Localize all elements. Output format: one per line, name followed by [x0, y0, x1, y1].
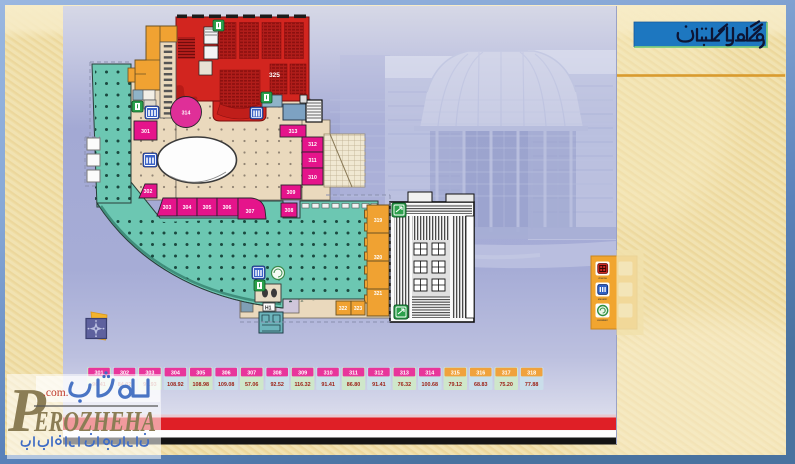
svg-text:310: 310 [308, 175, 317, 181]
svg-text:77.88: 77.88 [525, 382, 539, 388]
svg-text:92.52: 92.52 [270, 382, 284, 388]
svg-text:EROZHEHA: EROZHEHA [33, 406, 156, 438]
svg-text:305: 305 [196, 371, 205, 377]
svg-text:57.06: 57.06 [245, 382, 259, 388]
svg-text:305: 305 [203, 205, 212, 211]
svg-text:313: 313 [289, 129, 298, 135]
svg-text:H1: H1 [265, 306, 272, 312]
svg-text:302: 302 [144, 189, 153, 195]
svg-text:312: 312 [308, 142, 317, 148]
svg-text:312: 312 [374, 371, 383, 377]
svg-text:116.32: 116.32 [294, 382, 310, 388]
svg-text:68.83: 68.83 [474, 382, 488, 388]
svg-text:322: 322 [339, 306, 348, 312]
svg-text:79.12: 79.12 [449, 382, 463, 388]
svg-text:308: 308 [273, 371, 282, 377]
svg-text:306: 306 [222, 371, 231, 377]
svg-text:307: 307 [246, 209, 255, 215]
svg-text:309: 309 [298, 371, 307, 377]
svg-text:306: 306 [223, 205, 232, 211]
svg-text:318: 318 [527, 371, 536, 377]
svg-text:320: 320 [374, 255, 383, 261]
svg-text:108.98: 108.98 [193, 382, 210, 388]
svg-text:301: 301 [141, 129, 150, 135]
svg-text:314: 314 [425, 371, 434, 377]
svg-text:109.08: 109.08 [218, 382, 235, 388]
svg-text:315: 315 [451, 371, 460, 377]
svg-text:311: 311 [349, 371, 358, 377]
svg-text:311: 311 [308, 158, 316, 164]
svg-text:319: 319 [374, 218, 383, 224]
svg-text:316: 316 [476, 371, 485, 377]
svg-text:elevator: elevator [598, 297, 607, 301]
svg-text:100.68: 100.68 [422, 382, 439, 388]
svg-text:escalator: escalator [597, 318, 608, 322]
svg-text:304: 304 [183, 205, 192, 211]
svg-text:310: 310 [324, 371, 333, 377]
svg-text:317: 317 [502, 371, 511, 377]
svg-text:75.20: 75.20 [499, 382, 513, 388]
svg-text:304: 304 [171, 371, 180, 377]
svg-text:321: 321 [374, 291, 383, 297]
svg-text:307: 307 [247, 371, 256, 377]
svg-text:314: 314 [182, 111, 191, 117]
svg-text:76.32: 76.32 [398, 382, 412, 388]
svg-text:309: 309 [287, 190, 296, 196]
svg-text:91.41: 91.41 [372, 382, 386, 388]
svg-text:91.41: 91.41 [321, 382, 335, 388]
svg-text:303: 303 [163, 205, 172, 211]
svg-text:86.80: 86.80 [347, 382, 361, 388]
svg-text:325: 325 [269, 72, 280, 79]
svg-text:323: 323 [354, 306, 363, 312]
svg-text:108.92: 108.92 [167, 382, 184, 388]
svg-text:308: 308 [285, 208, 294, 214]
svg-text:313: 313 [400, 371, 409, 377]
svg-text:.com.: .com. [43, 387, 69, 399]
svg-text:cinema: cinema [598, 276, 607, 280]
